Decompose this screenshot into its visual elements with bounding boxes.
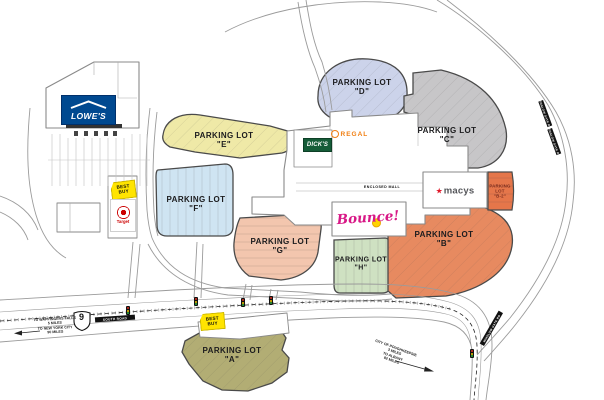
- macys-logo: ★ macys: [436, 186, 475, 196]
- lot-f-label: PARKING LOT"F": [167, 196, 226, 214]
- bestbuy-logo-south: BEST BUY: [199, 312, 225, 331]
- lot-b2-label: PARKINGLOT"B-2": [489, 183, 510, 198]
- lowes-logo: LOWE'S: [61, 95, 116, 125]
- regal-crown-icon: [331, 130, 339, 138]
- lot-g-label: PARKING LOT"G": [251, 238, 310, 256]
- target-logo: Target: [110, 199, 136, 232]
- enclosed-mall-label: ENCLOSED MALL: [362, 185, 402, 189]
- lot-a-label: PARKING LOT"A": [203, 347, 262, 365]
- traffic-signal-icon: [269, 296, 273, 305]
- bestbuy-logo-north: BEST BUY: [110, 180, 137, 201]
- lot-d-label: PARKING LOT"D": [333, 79, 392, 97]
- mall-site-plan-map: PARKING LOT"E" PARKING LOT"F" PARKING LO…: [0, 0, 604, 400]
- lot-h-label: PARKING LOT"H": [335, 256, 387, 271]
- dicks-logo: DICK'S: [303, 138, 332, 152]
- regal-logo: REGAL: [331, 130, 368, 138]
- lot-e-label: PARKING LOT"E": [195, 132, 254, 150]
- traffic-signal-icon: [126, 306, 130, 315]
- outparcel-building: [57, 203, 100, 232]
- westbound-directions: TO WAPPINGERS FALLS 5 MILES TO NEW YORK …: [24, 315, 87, 336]
- traffic-signal-icon: [470, 349, 474, 358]
- traffic-signal-icon: [194, 297, 198, 306]
- lot-c-label: PARKING LOT"C": [418, 127, 477, 145]
- lot-b-label: PARKING LOT"B": [415, 231, 474, 249]
- traffic-signal-icon: [241, 298, 245, 307]
- map-canvas: [0, 0, 604, 400]
- target-bullseye-icon: [117, 206, 130, 219]
- macys-star-icon: ★: [436, 187, 443, 195]
